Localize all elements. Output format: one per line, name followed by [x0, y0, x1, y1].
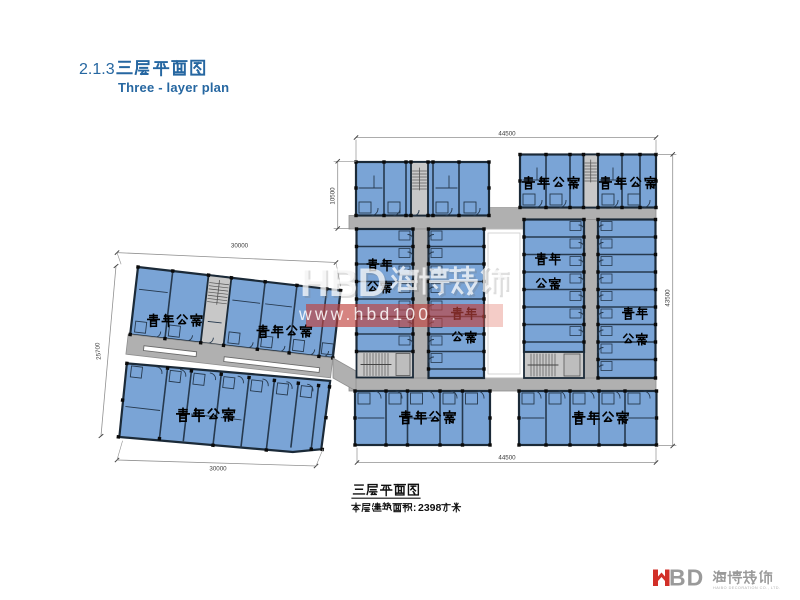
svg-text::: : — [413, 503, 416, 514]
svg-text:10500: 10500 — [330, 187, 337, 205]
svg-text:2.1.3: 2.1.3 — [79, 61, 115, 78]
svg-text:43500: 43500 — [665, 289, 672, 307]
svg-text:BD: BD — [669, 565, 704, 591]
svg-text:www.hbd100.: www.hbd100. — [298, 304, 439, 324]
svg-text:25700: 25700 — [94, 342, 103, 360]
svg-text:Three - layer plan: Three - layer plan — [118, 80, 229, 95]
svg-text:30000: 30000 — [209, 466, 227, 473]
svg-text:30000: 30000 — [231, 243, 249, 250]
svg-text:44500: 44500 — [498, 455, 516, 462]
svg-text:2398: 2398 — [418, 502, 442, 514]
svg-text:44500: 44500 — [498, 131, 516, 138]
svg-text:HBD: HBD — [300, 261, 387, 305]
svg-text:HAIBO DECORATION CO., LTD.: HAIBO DECORATION CO., LTD. — [713, 586, 780, 590]
